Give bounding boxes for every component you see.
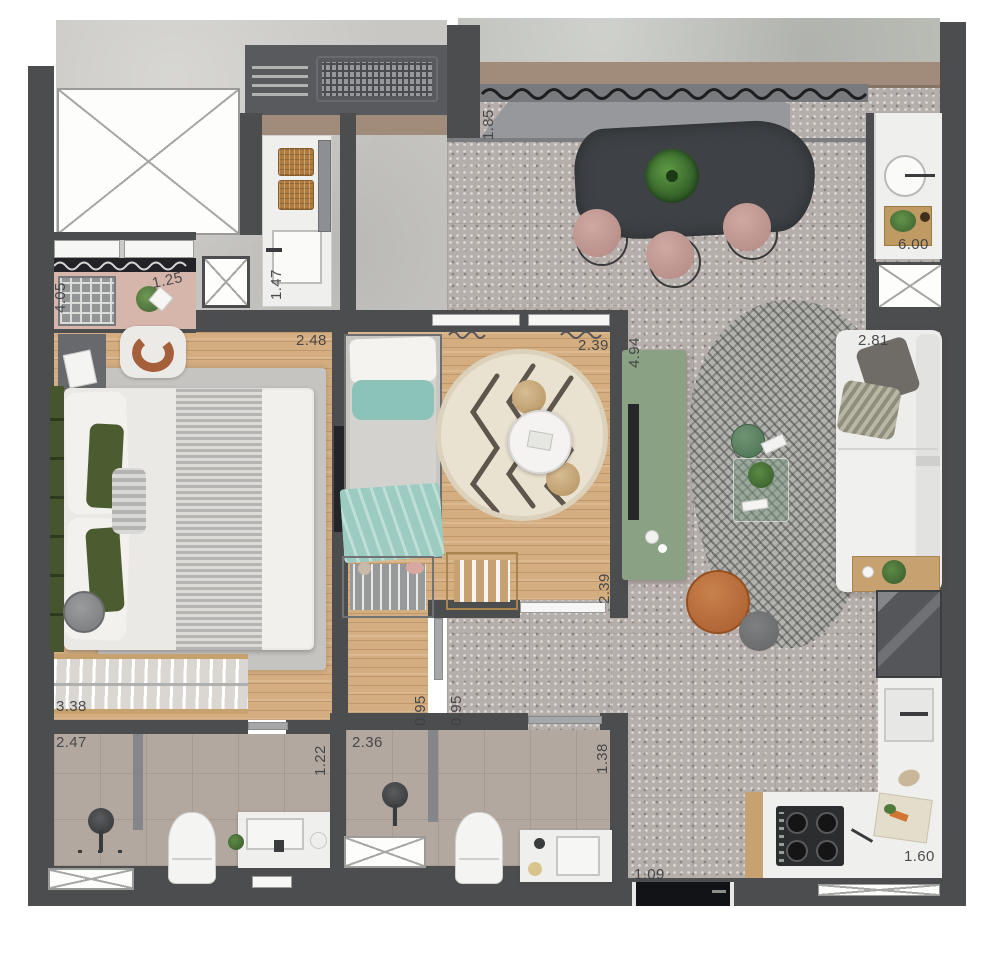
bath1-shower-arm: [99, 830, 103, 852]
wall-master-bottom-left: [28, 720, 248, 734]
dim-kitchen-counter-run: 1.60: [904, 848, 935, 865]
shaft-crossed-small: [202, 256, 250, 308]
dim-laundry-depth: 1.47: [268, 252, 285, 300]
bottom-glass-door: [632, 882, 734, 906]
laundry-basket-1: [278, 148, 314, 176]
bath1-faucet: [274, 840, 284, 852]
coffee-table-green: [731, 424, 765, 458]
toy-whale: [406, 562, 424, 574]
bed-foot-throw: [262, 390, 312, 648]
wall-bath2-right: [610, 713, 628, 878]
dim-bedroom2-lower-depth: 2.39: [596, 556, 613, 604]
dim-bath2-depth: 1.38: [594, 728, 611, 774]
bath1-shower-valves: [78, 850, 126, 853]
bench-back-rail: [52, 232, 196, 240]
console-vase: [645, 530, 659, 544]
window-crossed-bath1: [48, 868, 134, 890]
herb-jar: [920, 212, 930, 222]
wall-right: [940, 22, 966, 906]
bed-pillow-striped: [112, 468, 146, 534]
bench-slat-1: [54, 240, 120, 258]
dining-stool-3: [723, 203, 771, 251]
cooktop-burner-2: [816, 812, 838, 834]
wall-terrace-left: [447, 25, 480, 138]
sofa-back-cushions: [916, 334, 940, 588]
bath1-toilet: [168, 812, 216, 884]
bedroom2-window-sill-2: [528, 314, 610, 326]
dim-bath1-depth: 1.22: [312, 730, 329, 776]
bedroom2-door-leaf: [520, 602, 606, 613]
window-slit-bath1: [252, 876, 292, 888]
headboard-green: [50, 386, 64, 652]
counter-wood-edge: [745, 792, 763, 878]
bath2-shower-partition: [428, 730, 438, 822]
shelf-plant: [882, 560, 906, 584]
bedroom2-curtain-squiggle-1: [448, 328, 486, 340]
fridge: [876, 590, 942, 678]
dim-door-left: 0.95: [412, 680, 429, 726]
bath2-door-leaf: [528, 716, 602, 724]
sofa-pillow-chevron: [836, 379, 902, 440]
wall-shaft-right: [240, 113, 262, 235]
kitchen-faucet-top: [905, 174, 935, 177]
cooktop-burner-1: [786, 812, 808, 834]
gray-stool: [739, 611, 779, 651]
bath1-door-leaf: [248, 722, 288, 730]
bedroom1-pouf: [63, 591, 105, 633]
dim-bedroom2-length: 4.94: [626, 320, 643, 368]
dim-sofa-wall-width: 2.81: [858, 332, 889, 349]
dim-bedroom2-top-width: 2.39: [578, 337, 609, 354]
dim-bath2-width: 2.36: [352, 734, 383, 751]
dim-kitchen-top-run: 6.00: [898, 236, 929, 253]
cooktop-burner-3: [786, 840, 808, 862]
sofa-seat-seam: [838, 448, 938, 450]
bed-knit-runner: [176, 388, 262, 650]
floor-plan: 1.85 6.00 4.05 1.25 1.47 2.48 2.39 4.94 …: [0, 0, 1000, 960]
wall-bath2-top: [346, 713, 528, 730]
bedroom2-bookshelf: [446, 552, 518, 610]
nook-door-leaf: [434, 618, 443, 680]
bath1-shower-partition: [133, 734, 143, 830]
bath2-soap-dish: [528, 862, 542, 876]
bedroom2-window-sill-1: [432, 314, 520, 326]
dim-terrace-depth: 1.85: [480, 94, 497, 140]
bath2-vanity-sink: [556, 836, 600, 876]
ac-condenser-grille: [316, 56, 438, 102]
bath1-plant: [228, 834, 244, 850]
bath2-shower-arm: [393, 804, 397, 826]
dim-door-right: 0.95: [448, 680, 465, 726]
cooktop-burner-4: [816, 840, 838, 862]
window-slit-kitchen: [818, 884, 940, 896]
dim-balcony-length: 4.05: [52, 265, 69, 313]
herb-plant: [890, 210, 916, 232]
water-heater: [318, 140, 331, 232]
dim-bottom-door-width: 1.09: [634, 866, 665, 883]
bath2-toilet-seam: [459, 858, 499, 860]
single-bed-teal-blanket: [340, 483, 445, 564]
bench-slat-2: [124, 240, 194, 258]
shaft-crossed-large: [57, 88, 240, 235]
shelf-bowl: [862, 566, 874, 578]
console-figurine: [658, 544, 667, 553]
dining-plant-core: [666, 170, 678, 182]
shaft-crossed-kitchen: [876, 262, 944, 310]
cutting-board-greens: [884, 804, 896, 814]
bath2-toilet: [455, 812, 503, 884]
dim-bath1-width: 2.47: [56, 734, 87, 751]
top-ledge-floor: [458, 18, 940, 64]
single-bed-pillow: [349, 337, 436, 384]
kitchen-faucet-right: [900, 712, 928, 716]
bottom-glass-door-handle: [712, 890, 726, 893]
cooktop-controls: [779, 812, 784, 862]
dim-bedroom1-top-width: 2.48: [296, 332, 327, 349]
single-bed-teal-pillow: [352, 380, 434, 420]
bedroom2-pouf-1: [512, 380, 546, 414]
laundry-basket-2: [278, 180, 314, 210]
living-tv: [628, 404, 639, 520]
wall-laundry-right: [340, 113, 356, 312]
wall-left-upper: [28, 66, 54, 258]
bath1-toilet-seam: [172, 858, 212, 860]
bath2-faucet-knob: [534, 838, 545, 849]
window-crossed-bath2: [344, 836, 426, 868]
terrace-curtain-squiggle: [480, 84, 868, 102]
coffee-table-plant: [748, 462, 774, 488]
toy-teddy: [358, 562, 371, 575]
dining-stool-2: [646, 231, 694, 279]
ac-pipes: [252, 62, 308, 96]
dim-wardrobe-run: 3.38: [56, 698, 87, 715]
bath1-bowl: [310, 832, 327, 849]
dining-stool-1: [573, 209, 621, 257]
